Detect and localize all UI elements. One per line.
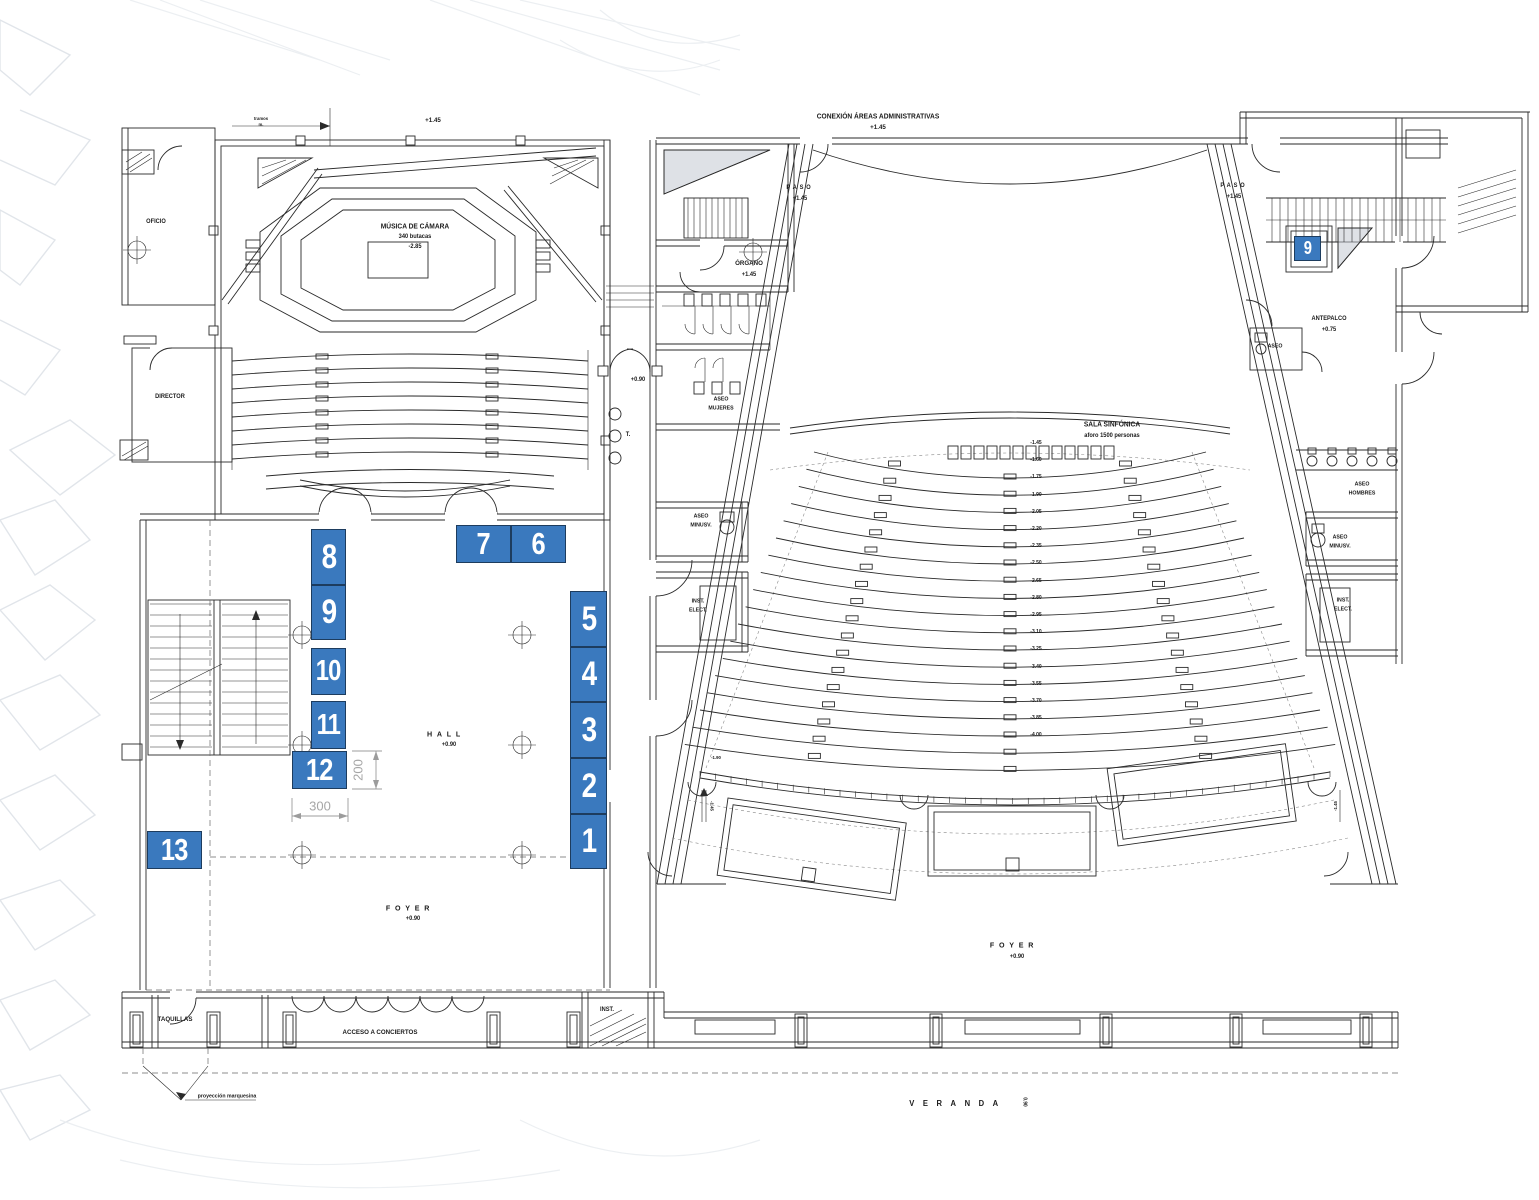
marker-6[interactable]: 6 [511,525,566,563]
row-level-label: -2.65 [1030,578,1041,584]
dimension-lines [232,108,382,822]
marker-2[interactable]: 2 [570,758,607,814]
plan-label: ELECT. [689,608,707,614]
plan-label: ELECT. [1334,607,1352,613]
row-level-label: -1.75 [1030,474,1041,480]
plan-label: SALA SINFÓNICA [1084,422,1140,429]
plan-label: aforo 1500 personas [1084,433,1139,439]
marker-13[interactable]: 13 [147,831,202,869]
floorplan-drawing [0,0,1539,1200]
plan-label: -2.85 [408,244,421,250]
plan-label: HALL [427,730,465,738]
plan-label: 0.90 [1022,1097,1027,1106]
plan-label: ASEO [1355,482,1370,488]
chamber-hall-plan [120,128,610,522]
plan-label: HOMBRES [1349,491,1376,497]
row-level-label: -3.10 [1030,629,1041,635]
plan-label: FOYER [990,941,1038,949]
marker-9[interactable]: 9 [311,585,346,640]
plan-label: ÓRGANO [735,261,763,268]
marker-9-elevator[interactable]: 9 [1294,236,1321,261]
row-level-label: -2.95 [1030,612,1041,618]
marker-number: 3 [581,711,596,750]
plan-label: ACCESO A CONCIERTOS [343,1030,418,1037]
marker-number: 9 [321,593,336,632]
plan-label: +0.75 [1322,327,1336,333]
plan-label: MUJERES [708,406,733,412]
plan-label: 340 butacas [399,234,432,240]
plan-label: INST. [600,1007,614,1013]
row-level-label: -3.55 [1030,681,1041,687]
plan-label: proyección marquesina [198,1094,257,1100]
plan-label: DIRECTOR [155,394,185,400]
plan-label: VERANDA [909,1100,1006,1108]
row-level-label: -3.70 [1030,698,1041,704]
plan-label: OFICIO [146,219,166,225]
plan-label: ASEO [1268,344,1283,350]
marker-number: 7 [477,526,490,562]
plan-label: T. [626,432,630,438]
row-level-label: -2.35 [1030,543,1041,549]
facade-strip [122,991,1398,1100]
row-level-label: -2.05 [1030,509,1041,515]
marker-4[interactable]: 4 [570,647,607,702]
plan-label: MINUSV. [690,523,711,529]
marker-12[interactable]: 12 [292,751,347,789]
plan-label: MINUSV. [1329,544,1350,550]
row-level-label: -2.80 [1030,595,1041,601]
plan-label: +1.45 [870,125,886,132]
plan-label: INST. [1337,598,1350,604]
plan-label: +0.90 [406,916,420,922]
plan-label: PASO [786,185,813,191]
row-level-label: -2.20 [1030,526,1041,532]
row-level-label: -4.00 [1030,732,1041,738]
marker-7[interactable]: 7 [456,525,511,563]
plan-label: -1.45 [1334,801,1339,811]
marker-number: 11 [317,709,341,742]
marker-10[interactable]: 10 [311,648,346,695]
marker-5[interactable]: 5 [570,591,607,647]
plan-label: m. [258,123,263,128]
plan-label: +0.90 [631,377,645,383]
marker-number: 10 [316,655,341,688]
plan-label: ANTEPALCO [1311,316,1346,322]
plan-label: PASO [1220,183,1247,189]
marker-number: 1 [581,822,596,861]
plan-label: TAQUILLAS [158,1017,193,1024]
plan-label: +1.45 [1227,194,1241,200]
marker-number: 5 [581,600,596,639]
marker-number: 4 [581,655,596,694]
plan-label: tramos [254,117,268,122]
marker-number: 12 [306,752,333,788]
plan-label: -1.90 [711,756,721,761]
marker-number: 8 [321,538,336,577]
plan-label: +0.90 [1010,954,1024,960]
row-level-label: -1.45 [1030,440,1041,446]
blueprint-canvas: 123456789101112139 CONEXIÓN ÁREAS ADMINI… [0,0,1539,1200]
plan-label: +0.90 [442,742,456,748]
symphonic-right-rooms [1240,112,1530,664]
dimension-label: 200 [352,759,365,781]
row-level-label: -3.85 [1030,715,1041,721]
plan-label: +1.45 [742,272,756,278]
marker-number: 6 [532,526,545,562]
plan-label: -1.45 [709,801,714,811]
marker-number: 2 [581,767,596,806]
symphonic-hall-plan [648,138,1448,900]
marker-8[interactable]: 8 [311,529,346,585]
marker-number: 13 [161,832,188,868]
row-level-label: -3.40 [1030,664,1041,670]
plan-label: INST. [692,599,705,605]
plan-label: ASEO [1333,535,1348,541]
plan-label: +1.45 [793,196,807,202]
plan-label: FOYER [386,904,434,912]
row-level-label: -1.90 [1030,492,1041,498]
marker-1[interactable]: 1 [570,814,607,869]
plan-label: CONEXIÓN ÁREAS ADMINISTRATIVAS [817,114,940,121]
plan-label: +1.45 [425,118,441,125]
row-level-label: -2.50 [1030,560,1041,566]
row-level-label: -1.60 [1030,457,1041,463]
marker-number: 9 [1304,238,1311,259]
plan-label: MÚSICA DE CÁMARA [381,224,449,231]
plan-label: ASEO [714,397,729,403]
dimension-label: 300 [309,800,331,813]
marker-3[interactable]: 3 [570,702,607,758]
plan-label: ASEO [694,514,709,520]
row-level-label: -3.25 [1030,646,1041,652]
marker-11[interactable]: 11 [311,701,346,749]
